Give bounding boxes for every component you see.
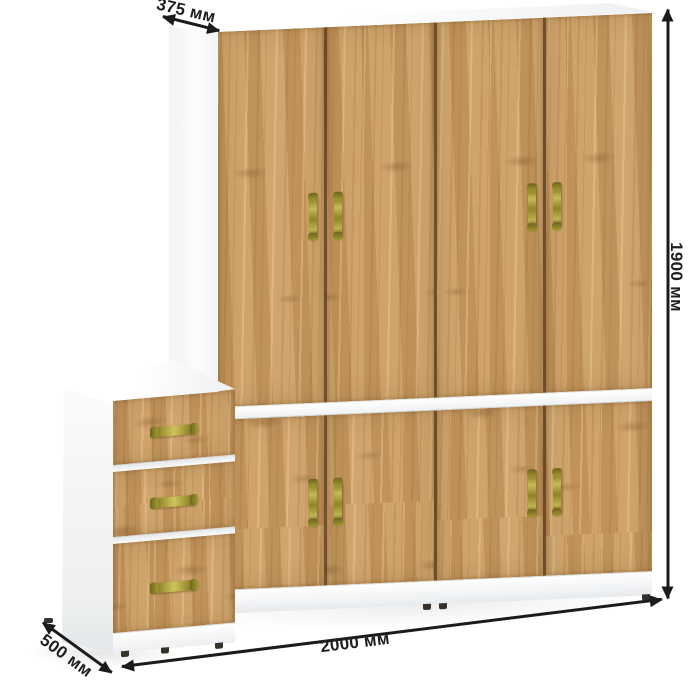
foot [215, 642, 223, 649]
door-handle [553, 469, 561, 515]
wardrobe-upper-door-3 [434, 18, 543, 398]
door-handle [528, 470, 536, 516]
wardrobe-lower-door-4 [543, 401, 652, 576]
door-handle [528, 184, 536, 230]
door-handle [334, 479, 342, 525]
furniture-dimension-diagram: 375 мм 1900 мм 2000 мм 500 мм [0, 0, 700, 680]
foot [161, 647, 169, 654]
drawer-1 [113, 390, 235, 465]
drawer-handle [151, 580, 197, 594]
wardrobe-upper-door-row [218, 13, 652, 407]
wardrobe-upper-door-4 [543, 13, 652, 393]
drawer-handle [151, 495, 197, 509]
wardrobe [218, 13, 652, 614]
drawer-2 [113, 461, 235, 537]
drawer-handle [151, 423, 197, 437]
drawer-unit-side-panel [62, 386, 114, 656]
foot [423, 604, 431, 610]
wardrobe-lower-door-2 [324, 411, 433, 586]
door-handle [309, 194, 317, 240]
drawer-unit [113, 390, 235, 653]
door-handle [553, 183, 561, 229]
drawer-3 [113, 533, 235, 633]
wardrobe-upper-door-1 [218, 27, 324, 407]
door-handle [334, 193, 342, 239]
foot [439, 603, 447, 609]
foot [121, 651, 129, 658]
wardrobe-lower-door-row [218, 401, 652, 590]
wardrobe-lower-door-3 [434, 406, 543, 581]
door-handle [309, 480, 317, 526]
wardrobe-upper-door-2 [324, 23, 433, 403]
dimension-label-width: 2000 мм [319, 629, 391, 657]
dimension-label-height: 1900 мм [666, 242, 686, 312]
